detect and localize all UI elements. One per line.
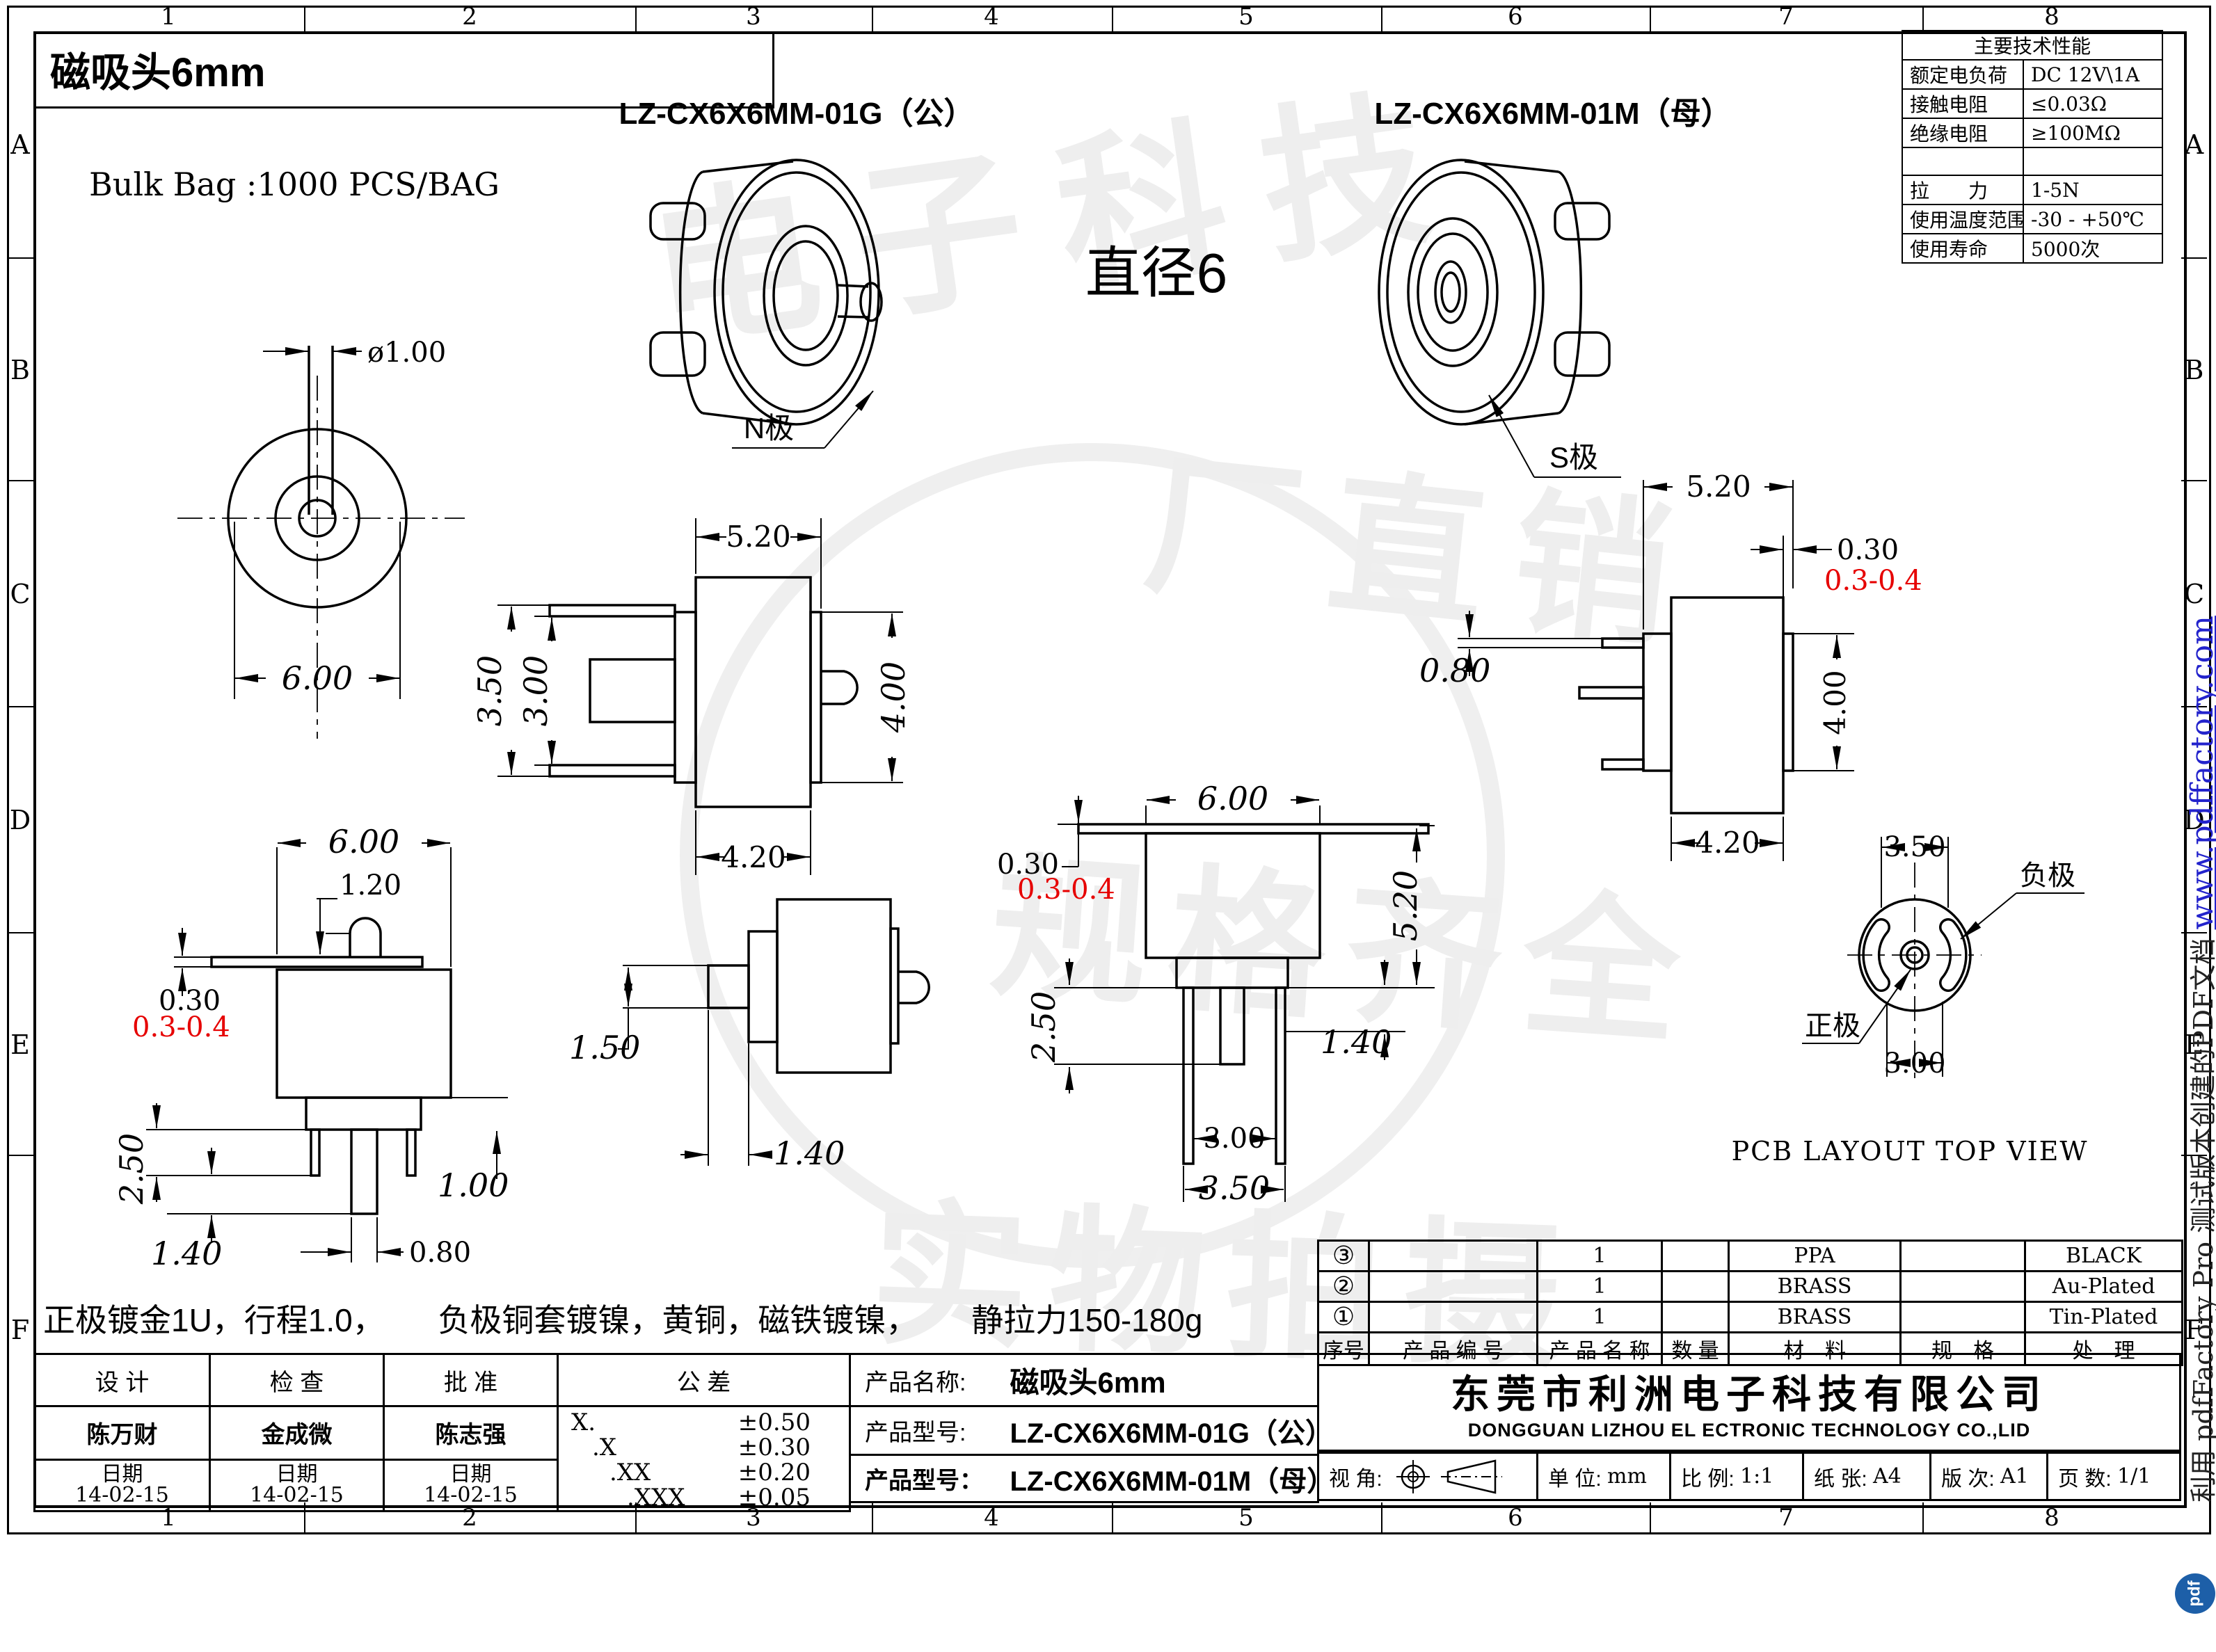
view-angle-cell: 视 角:	[1319, 1454, 1538, 1499]
product-name: 磁吸头6mm	[1010, 1354, 1318, 1406]
checker-name: 金成微	[210, 1406, 384, 1460]
product-model-label: 产品型号:	[850, 1406, 1010, 1455]
product-name-label: 产品名称:	[850, 1354, 1010, 1406]
company-name-cn: 东莞市利洲电子科技有限公司	[1319, 1363, 2179, 1420]
product-model-male: LZ-CX6X6MM-01G（公）	[1010, 1406, 1318, 1455]
bom-row: ②1BRASSAu-Plated	[1318, 1272, 2183, 1302]
scale-cell: 比 例: 1:1	[1671, 1454, 1804, 1499]
spec-title: 主要技术性能	[1902, 31, 2162, 60]
paper-cell: 纸 张: A4	[1804, 1454, 1931, 1499]
revision-cell: 版 次: A1	[1931, 1454, 2048, 1499]
design-label: 设 计	[35, 1354, 210, 1406]
pdffactory-logo-text: pdf	[2185, 1580, 2205, 1606]
unit-cell: 单 位: mm	[1538, 1454, 1671, 1499]
approver-name: 陈志强	[384, 1406, 558, 1460]
footer-row: 视 角: 单 位: mm 比 例: 1:1 纸 张: A4 版 次: A1 页 …	[1317, 1452, 2181, 1501]
product-table: 产品名称: 磁吸头6mm 产品型号: LZ-CX6X6MM-01G（公） 产品型…	[849, 1353, 1319, 1503]
material-note: 正极镀金1U，行程1.0， 负极铜套镀镍，黄铜，磁铁镀镍， 静拉力150-180…	[43, 1295, 1203, 1341]
check-date: 日期14-02-15	[210, 1459, 384, 1511]
approve-date: 日期14-02-15	[384, 1459, 558, 1511]
design-date: 日期14-02-15	[35, 1459, 210, 1511]
pdffactory-url[interactable]: www.pdffactory.com	[2185, 616, 2216, 929]
bom-row: ③1PPABLACK	[1318, 1241, 2183, 1272]
bom-table: ③1PPABLACK ②1BRASSAu-Plated ①1BRASSTin-P…	[1317, 1240, 2183, 1366]
pdffactory-logo: pdf	[2175, 1573, 2215, 1614]
product-model-label-2: 产品型号：	[850, 1455, 1010, 1502]
spec-table: 主要技术性能 额定电负荷DC 12V\1A 接触电阻≤0.03Ω 绝缘电阻≥10…	[1902, 30, 2163, 264]
bulk-bag-note: Bulk Bag :1000 PCS/BAG	[89, 166, 500, 203]
product-model-female: LZ-CX6X6MM-01M（母）	[1010, 1455, 1318, 1502]
bom-row: ①1BRASSTin-Plated	[1318, 1302, 2183, 1333]
check-label: 检 查	[210, 1354, 384, 1406]
company-name-en: DONGGUAN LIZHOU EL ECTRONIC TECHNOLOGY C…	[1319, 1420, 2179, 1441]
designer-name: 陈万财	[35, 1406, 210, 1460]
sheet-title: 磁吸头6mm	[33, 40, 265, 98]
company-block: 东莞市利洲电子科技有限公司 DONGGUAN LIZHOU EL ECTRONI…	[1317, 1353, 2181, 1452]
signature-table: 设 计 检 查 批 准 公 差 陈万财 金成微 陈志强 X.±0.50 .X±0…	[33, 1353, 851, 1512]
pages-cell: 页 数: 1/1	[2048, 1454, 2179, 1499]
approve-label: 批 准	[384, 1354, 558, 1406]
tolerance-label: 公 差	[558, 1354, 850, 1406]
pdf-creator-text: 利用 pdfFactory Pro 测试版本创建的PDF文档	[2188, 929, 2216, 1502]
tolerance-values: X.±0.50 .X±0.30 .XX±0.20 .XXX±0.05	[558, 1406, 850, 1511]
view-angle-label: 视 角:	[1329, 1461, 1382, 1492]
third-angle-projection-icon	[1389, 1455, 1508, 1498]
sheet-title-box: 磁吸头6mm	[33, 31, 774, 109]
